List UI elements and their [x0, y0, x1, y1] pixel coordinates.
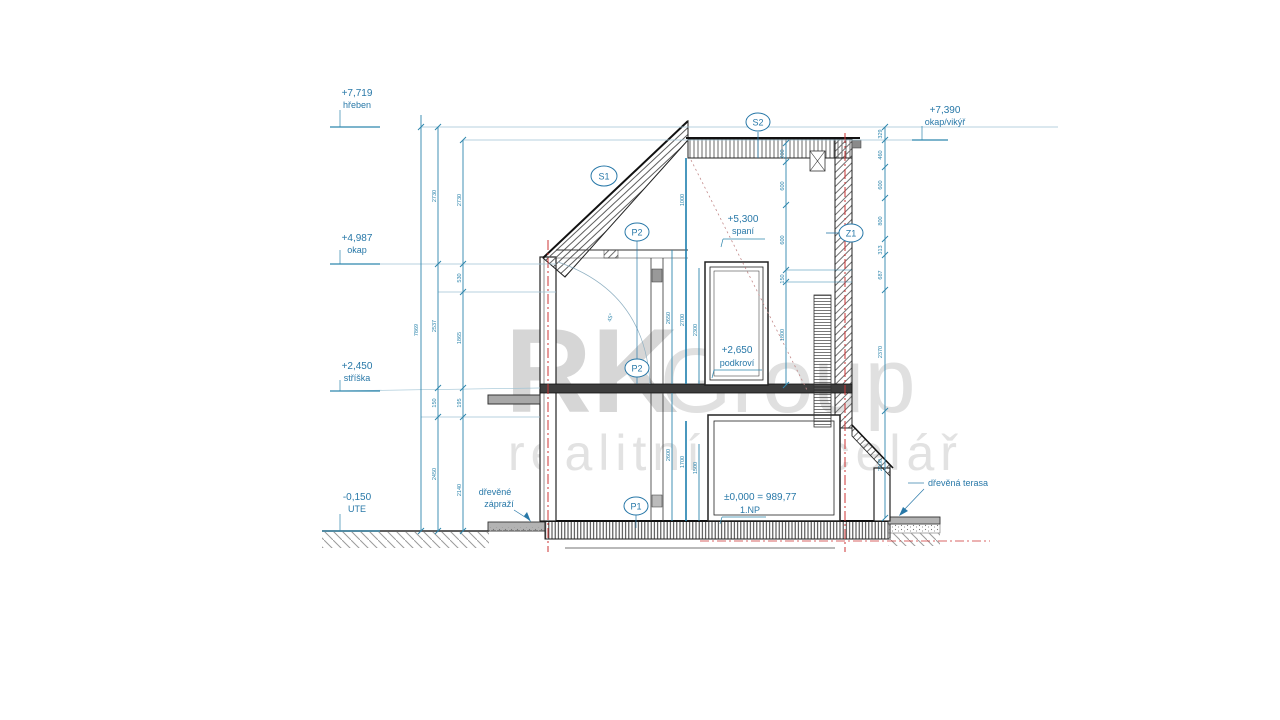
level-eave-value: +4,987	[342, 233, 373, 244]
dim-c2-3: 2450	[432, 468, 438, 480]
dim-attic-2-value: 2700	[680, 314, 686, 326]
dim-right-1: 460	[878, 150, 884, 159]
main-roof-edge	[543, 121, 688, 258]
dim-dormer-0: 200	[780, 149, 786, 158]
cross-box-detail	[810, 151, 825, 171]
ground-hatch-right	[888, 533, 940, 546]
level-ute-label: UTE	[348, 504, 366, 514]
terrain	[322, 517, 990, 548]
terrace-bed	[888, 524, 940, 533]
terrace-leader-arrow	[899, 507, 908, 516]
dim-c2-0: 2730	[432, 190, 438, 202]
level-eave-label: okap	[347, 245, 367, 255]
mark-s2: S2	[752, 118, 763, 128]
dim-ground-1-value: 1700	[680, 456, 686, 468]
flat-roof-end-detail	[852, 140, 861, 148]
level-ridge-value: +7,719	[342, 88, 373, 99]
dim-attic-3-value: 2300	[693, 324, 699, 336]
dim-right-6: 2370	[878, 346, 884, 358]
section-drawing-canvas: RK Group realitní kancelář	[0, 0, 1280, 720]
mark-z1: Z1	[846, 229, 857, 239]
ground-hatch-left	[322, 532, 489, 548]
dim-c2-1: 2537	[432, 320, 438, 332]
dim-right-3: 800	[878, 216, 884, 225]
np-value: ±0,000 = 989,77	[724, 492, 797, 503]
level-canopy-label: stříška	[344, 373, 371, 383]
porch-label-line2: zápraží	[484, 499, 514, 509]
mark-p2-upper: P2	[631, 228, 642, 238]
dim-right-2: 600	[878, 180, 884, 189]
section-drawing: RK Group realitní kancelář	[0, 0, 1280, 720]
dim-ground-2-value: 1500	[693, 462, 699, 474]
mark-p1: P1	[630, 502, 641, 512]
porch-label-line1: dřevěné	[479, 487, 512, 497]
dim-dormer-4: 1800	[780, 329, 786, 341]
pergola-beam	[488, 395, 540, 404]
dim-c3-3: 195	[457, 398, 463, 407]
dim-c3-0: 2730	[457, 194, 463, 206]
dim-c3-2: 1865	[457, 332, 463, 344]
right-wall-ground	[874, 468, 890, 521]
dim-right-7: 2100	[878, 459, 884, 471]
spani-leader	[721, 239, 765, 247]
dim-left-total: 7869	[414, 324, 420, 336]
podkrovi-value: +2,650	[722, 345, 753, 356]
dim-c2-2: 150	[432, 398, 438, 407]
level-dormer-label: okap/vikýř	[925, 117, 967, 127]
np-label: 1.NP	[740, 505, 760, 515]
terrace-label: dřevěná terasa	[928, 478, 988, 488]
dim-attic-1-value: 1000	[680, 194, 686, 206]
ground-floor-glazing	[708, 415, 840, 521]
dim-dormer-2: 600	[780, 235, 786, 244]
level-canopy-value: +2,450	[342, 361, 373, 372]
spani-label: spaní	[732, 226, 755, 236]
porch-speckle	[489, 527, 544, 531]
ladder	[814, 295, 831, 427]
dim-dormer-3: 150	[780, 274, 786, 283]
mark-s1: S1	[598, 172, 609, 182]
dim-right-5: 687	[878, 270, 884, 279]
foundation-slab	[545, 521, 890, 539]
level-ridge-label: hřeben	[343, 100, 371, 110]
spani-value: +5,300	[728, 214, 759, 225]
dim-c3-1: 530	[457, 273, 463, 282]
collar-beam	[604, 250, 618, 258]
podkrovi-label: podkroví	[720, 358, 755, 368]
dim-attic-0: 2650	[666, 312, 672, 324]
mark-p2-lower: P2	[631, 364, 642, 374]
level-ute-value: -0,150	[343, 492, 372, 503]
terrace-leader	[902, 489, 924, 512]
dim-right-4: 313	[878, 245, 884, 254]
terrace-slab	[888, 517, 940, 524]
dim-dormer-1: 600	[780, 181, 786, 190]
dim-ground-0-value: 2600	[666, 449, 672, 461]
dim-c3-4: 2140	[457, 484, 463, 496]
watermark-rk: RK	[505, 304, 678, 438]
attic-floor-slab	[540, 384, 852, 393]
dim-right-0: 329	[878, 129, 884, 138]
level-dormer-value: +7,390	[930, 105, 961, 116]
flat-roof	[688, 139, 852, 158]
